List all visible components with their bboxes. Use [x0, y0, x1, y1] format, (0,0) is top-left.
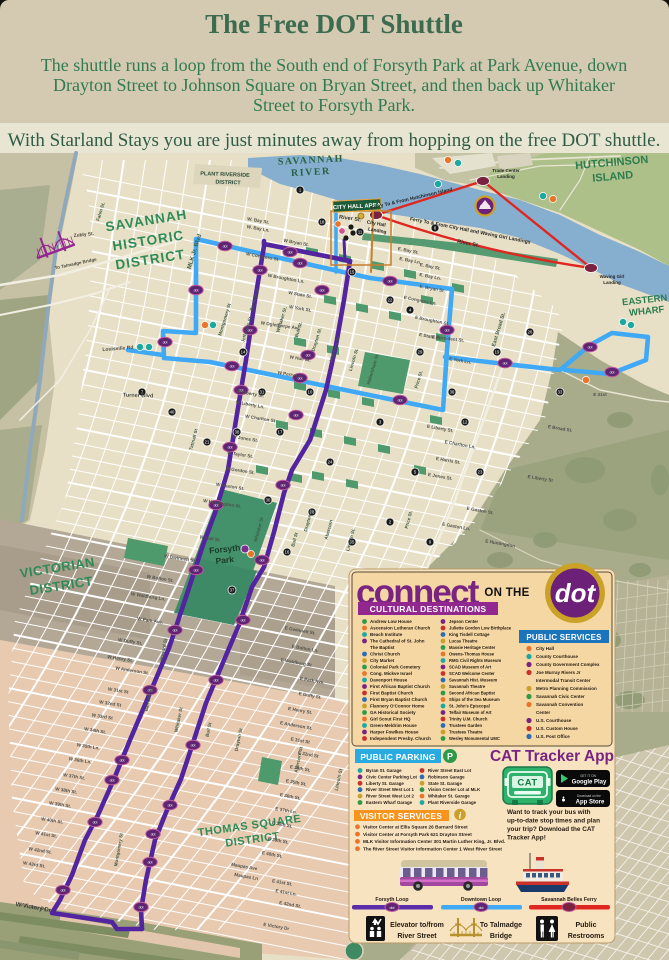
svg-text:Trustees Theatre: Trustees Theatre	[449, 730, 483, 735]
svg-text:River Street East Lot: River Street East Lot	[428, 768, 472, 773]
svg-text:CULTURAL DESTINATIONS: CULTURAL DESTINATIONS	[370, 604, 487, 614]
svg-text:City Market: City Market	[370, 658, 395, 663]
svg-text:Restrooms: Restrooms	[568, 933, 605, 940]
svg-text:12: 12	[463, 420, 468, 425]
svg-text:dot: dot	[479, 906, 484, 910]
svg-text:Landing: Landing	[603, 280, 621, 285]
svg-text:Wesley Monumental UMC: Wesley Monumental UMC	[449, 736, 500, 741]
svg-text:Colonial Park Cemetery: Colonial Park Cemetery	[370, 665, 421, 670]
svg-text:dot: dot	[168, 804, 173, 808]
svg-text:Trade Center: Trade Center	[492, 168, 520, 173]
svg-text:U.S. Post Office: U.S. Post Office	[536, 734, 570, 739]
svg-text:19: 19	[495, 350, 500, 355]
svg-text:36: 36	[450, 390, 455, 395]
svg-text:21: 21	[205, 440, 210, 445]
svg-text:P: P	[447, 752, 453, 762]
svg-text:Vision Center Lot at MLK: Vision Center Lot at MLK	[428, 787, 481, 792]
svg-text:Street to Forsyth Park.: Street to Forsyth Park.	[253, 95, 415, 115]
svg-text:17: 17	[278, 430, 283, 435]
svg-text:GA Historical Society: GA Historical Society	[370, 710, 416, 715]
svg-text:King Tisdell Cottage: King Tisdell Cottage	[449, 632, 490, 637]
svg-text:dot: dot	[320, 289, 325, 293]
svg-text:11: 11	[358, 230, 363, 235]
svg-text:dot: dot	[398, 399, 403, 403]
svg-text:Eastern Wharf Garage: Eastern Wharf Garage	[366, 800, 413, 805]
svg-text:Whitaker St. Garage: Whitaker St. Garage	[428, 794, 470, 799]
svg-text:Savannah Hist. Museum: Savannah Hist. Museum	[449, 678, 497, 683]
svg-text:dot: dot	[151, 833, 156, 837]
svg-text:GET IT ON: GET IT ON	[580, 774, 597, 778]
svg-text:E 31st: E 31st	[593, 392, 607, 397]
svg-text:Want to track your bus with: Want to track your bus with	[507, 809, 591, 816]
svg-text:Tracker App!: Tracker App!	[507, 835, 546, 842]
svg-text:dot: dot	[173, 629, 178, 633]
svg-text:dot: dot	[148, 861, 153, 865]
svg-text:River Street West Lot 2: River Street West Lot 2	[366, 794, 415, 799]
svg-text:Center: Center	[536, 710, 551, 715]
svg-text:Andrew Low House: Andrew Low House	[370, 619, 412, 624]
svg-text:dot: dot	[223, 245, 228, 249]
svg-text:26: 26	[528, 330, 533, 335]
svg-text:dot: dot	[388, 280, 393, 284]
svg-text:up-to-date stop times and plan: up-to-date stop times and plan	[507, 818, 600, 825]
svg-text:dot: dot	[194, 569, 199, 573]
svg-text:Landing: Landing	[497, 174, 515, 179]
svg-text:The River Street Visitor Infor: The River Street Visitor Information Cen…	[363, 846, 502, 851]
svg-text:Elevator to/from: Elevator to/from	[390, 922, 444, 929]
svg-text:River Street West Lot 1: River Street West Lot 1	[366, 787, 415, 792]
svg-text:Intermodal Transit Center: Intermodal Transit Center	[536, 678, 591, 683]
svg-text:dot: dot	[93, 821, 98, 825]
svg-text:dot: dot	[503, 362, 508, 366]
svg-text:24: 24	[328, 460, 333, 465]
svg-text:MLK Visitor Information Center: MLK Visitor Information Center 301 Marti…	[363, 839, 505, 844]
svg-text:Ascension Lutheran Church: Ascension Lutheran Church	[370, 626, 431, 631]
svg-text:State St. Garage: State St. Garage	[428, 781, 462, 786]
svg-text:Bridge: Bridge	[490, 933, 512, 940]
svg-text:dot: dot	[241, 619, 246, 623]
svg-text:Davenport House: Davenport House	[370, 678, 408, 683]
svg-text:Ships of the Sea Museum: Ships of the Sea Museum	[449, 697, 500, 702]
svg-text:Google Play: Google Play	[572, 780, 607, 786]
svg-text:River Street: River Street	[397, 933, 437, 940]
svg-text:The Cathedral of St. John: The Cathedral of St. John	[370, 639, 425, 644]
svg-text:dot: dot	[163, 341, 168, 345]
svg-text:dot: dot	[610, 371, 615, 375]
svg-text:SCAD Welcome Center: SCAD Welcome Center	[449, 671, 495, 676]
svg-text:Juliette Gordon Low Birthplace: Juliette Gordon Low Birthplace	[449, 626, 512, 631]
svg-text:U.S. Courthouse: U.S. Courthouse	[536, 718, 572, 723]
svg-text:County Courthouse: County Courthouse	[536, 654, 578, 659]
svg-text:dot: dot	[390, 906, 395, 910]
svg-text:Independent Presby. Church: Independent Presby. Church	[370, 736, 431, 741]
svg-text:10: 10	[308, 390, 313, 395]
svg-text:City Hall: City Hall	[536, 646, 554, 651]
svg-text:dot: dot	[230, 365, 235, 369]
svg-text:Turner Blvd: Turner Blvd	[123, 392, 154, 399]
svg-text:St. John's Episcopal: St. John's Episcopal	[449, 704, 490, 709]
svg-text:Robinson Garage: Robinson Garage	[428, 774, 465, 779]
svg-text:Metro Planning Commission: Metro Planning Commission	[536, 686, 597, 691]
svg-text:CAT Tracker App: CAT Tracker App	[490, 748, 614, 765]
svg-text:County Government Complex: County Government Complex	[536, 662, 600, 667]
svg-text:your trip? Download the CAT: your trip? Download the CAT	[507, 826, 595, 833]
svg-text:dot: dot	[555, 578, 597, 608]
svg-text:dot: dot	[139, 906, 144, 910]
svg-text:Park: Park	[215, 554, 235, 566]
svg-text:To Talmadge: To Talmadge	[480, 922, 522, 929]
svg-text:Savannah Civic Center: Savannah Civic Center	[536, 694, 585, 699]
svg-text:Cong. Mickve Israel: Cong. Mickve Israel	[370, 671, 412, 676]
svg-text:First Baptist Church: First Baptist Church	[370, 691, 414, 696]
svg-text:dot: dot	[588, 346, 593, 350]
svg-text:40: 40	[170, 410, 175, 415]
svg-text:18: 18	[320, 220, 325, 225]
svg-text:First African Baptist Church: First African Baptist Church	[370, 684, 430, 689]
svg-text:U.S. Custom House: U.S. Custom House	[536, 726, 578, 731]
svg-text:The Free DOT Shuttle: The Free DOT Shuttle	[205, 9, 463, 39]
svg-text:dot: dot	[445, 329, 450, 333]
svg-text:22: 22	[388, 298, 393, 303]
svg-text:Owens-Thomas House: Owens-Thomas House	[449, 652, 495, 657]
svg-text:dot: dot	[294, 414, 299, 418]
svg-text:First Bryan Baptist Church: First Bryan Baptist Church	[370, 697, 428, 702]
svg-text:37: 37	[230, 588, 235, 593]
svg-text:DISTRICT: DISTRICT	[215, 180, 241, 187]
svg-text:29: 29	[418, 350, 423, 355]
svg-text:PUBLIC SERVICES: PUBLIC SERVICES	[526, 633, 602, 642]
svg-text:Green-Meldrim House: Green-Meldrim House	[370, 723, 417, 728]
svg-text:dot: dot	[110, 779, 115, 783]
svg-text:16: 16	[285, 550, 290, 555]
svg-text:Byran St. Garage: Byran St. Garage	[366, 768, 402, 773]
svg-text:dot: dot	[258, 269, 263, 273]
svg-text:The shuttle runs a loop from t: The shuttle runs a loop from the South e…	[41, 55, 628, 75]
svg-text:PUBLIC PARKING: PUBLIC PARKING	[360, 752, 436, 762]
svg-text:With Starland Stays you are ju: With Starland Stays you are just minutes…	[8, 130, 661, 151]
svg-text:dot: dot	[120, 759, 125, 763]
svg-text:Waving Girl: Waving Girl	[600, 274, 625, 279]
svg-text:33: 33	[558, 390, 563, 395]
svg-text:Jepson Center: Jepson Center	[449, 619, 478, 624]
svg-text:SCAD Museum of Art: SCAD Museum of Art	[449, 665, 492, 670]
svg-text:RMG Civil Rights Museum: RMG Civil Rights Museum	[449, 658, 501, 663]
svg-text:Visitor Center at Forsyth Park: Visitor Center at Forsyth Park 621 Drayt…	[363, 832, 472, 837]
svg-text:30: 30	[266, 498, 271, 503]
svg-text:dot: dot	[288, 251, 293, 255]
svg-text:Massie Heritage Center: Massie Heritage Center	[449, 645, 496, 650]
svg-text:dot: dot	[228, 446, 233, 450]
svg-text:Harper Fowlkes House: Harper Fowlkes House	[370, 730, 419, 735]
svg-text:Beach Institute: Beach Institute	[370, 632, 403, 637]
svg-text:Civic Center Parking Lot: Civic Center Parking Lot	[366, 774, 418, 779]
svg-text:Second African Baptist: Second African Baptist	[449, 691, 496, 696]
svg-text:Trinity U.M. Church: Trinity U.M. Church	[449, 717, 488, 722]
svg-text:23: 23	[478, 470, 483, 475]
svg-text:Trustees Garden: Trustees Garden	[449, 723, 482, 728]
svg-text:dot: dot	[194, 289, 199, 293]
svg-text:Joe Murray Rivers Jr: Joe Murray Rivers Jr	[536, 670, 581, 675]
svg-text:App Store: App Store	[576, 800, 605, 806]
svg-text:Liberty St. Garage: Liberty St. Garage	[366, 781, 404, 786]
svg-text:Christ Church: Christ Church	[370, 652, 400, 657]
svg-text:Public: Public	[575, 922, 596, 929]
svg-text:dot: dot	[260, 559, 265, 563]
svg-text:RIVER: RIVER	[291, 166, 331, 179]
svg-text:dot: dot	[61, 889, 66, 893]
svg-text:Visitor Center at Ellis Square: Visitor Center at Ellis Square 26 Barnar…	[363, 825, 468, 830]
svg-text:VISITOR SERVICES: VISITOR SERVICES	[360, 811, 442, 821]
svg-text:Lucas Theatre: Lucas Theatre	[449, 639, 478, 644]
svg-text:ON THE: ON THE	[484, 587, 529, 599]
svg-text:Flannery O'Connor Home: Flannery O'Connor Home	[370, 704, 425, 709]
svg-text:Plant Riverside Garage: Plant Riverside Garage	[428, 800, 477, 805]
svg-text:Download on the: Download on the	[577, 794, 601, 798]
svg-text:dot: dot	[191, 744, 196, 748]
svg-text:The Baptist: The Baptist	[370, 645, 395, 650]
svg-text:Drayton Street to Johnson Squa: Drayton Street to Johnson Square on Brya…	[53, 75, 615, 95]
svg-text:dot: dot	[298, 262, 303, 266]
svg-text:Savannah Convention: Savannah Convention	[536, 702, 584, 707]
svg-text:Savannah Theatre: Savannah Theatre	[449, 684, 486, 689]
svg-text:dot: dot	[214, 679, 219, 683]
svg-text:15: 15	[350, 270, 355, 275]
svg-text:dot: dot	[281, 484, 286, 488]
svg-text:Telfair Museum of Art: Telfair Museum of Art	[449, 710, 492, 715]
svg-text:14: 14	[241, 350, 246, 355]
svg-text:Girl Scout First HQ: Girl Scout First HQ	[370, 717, 411, 722]
svg-text:CAT: CAT	[517, 778, 537, 789]
